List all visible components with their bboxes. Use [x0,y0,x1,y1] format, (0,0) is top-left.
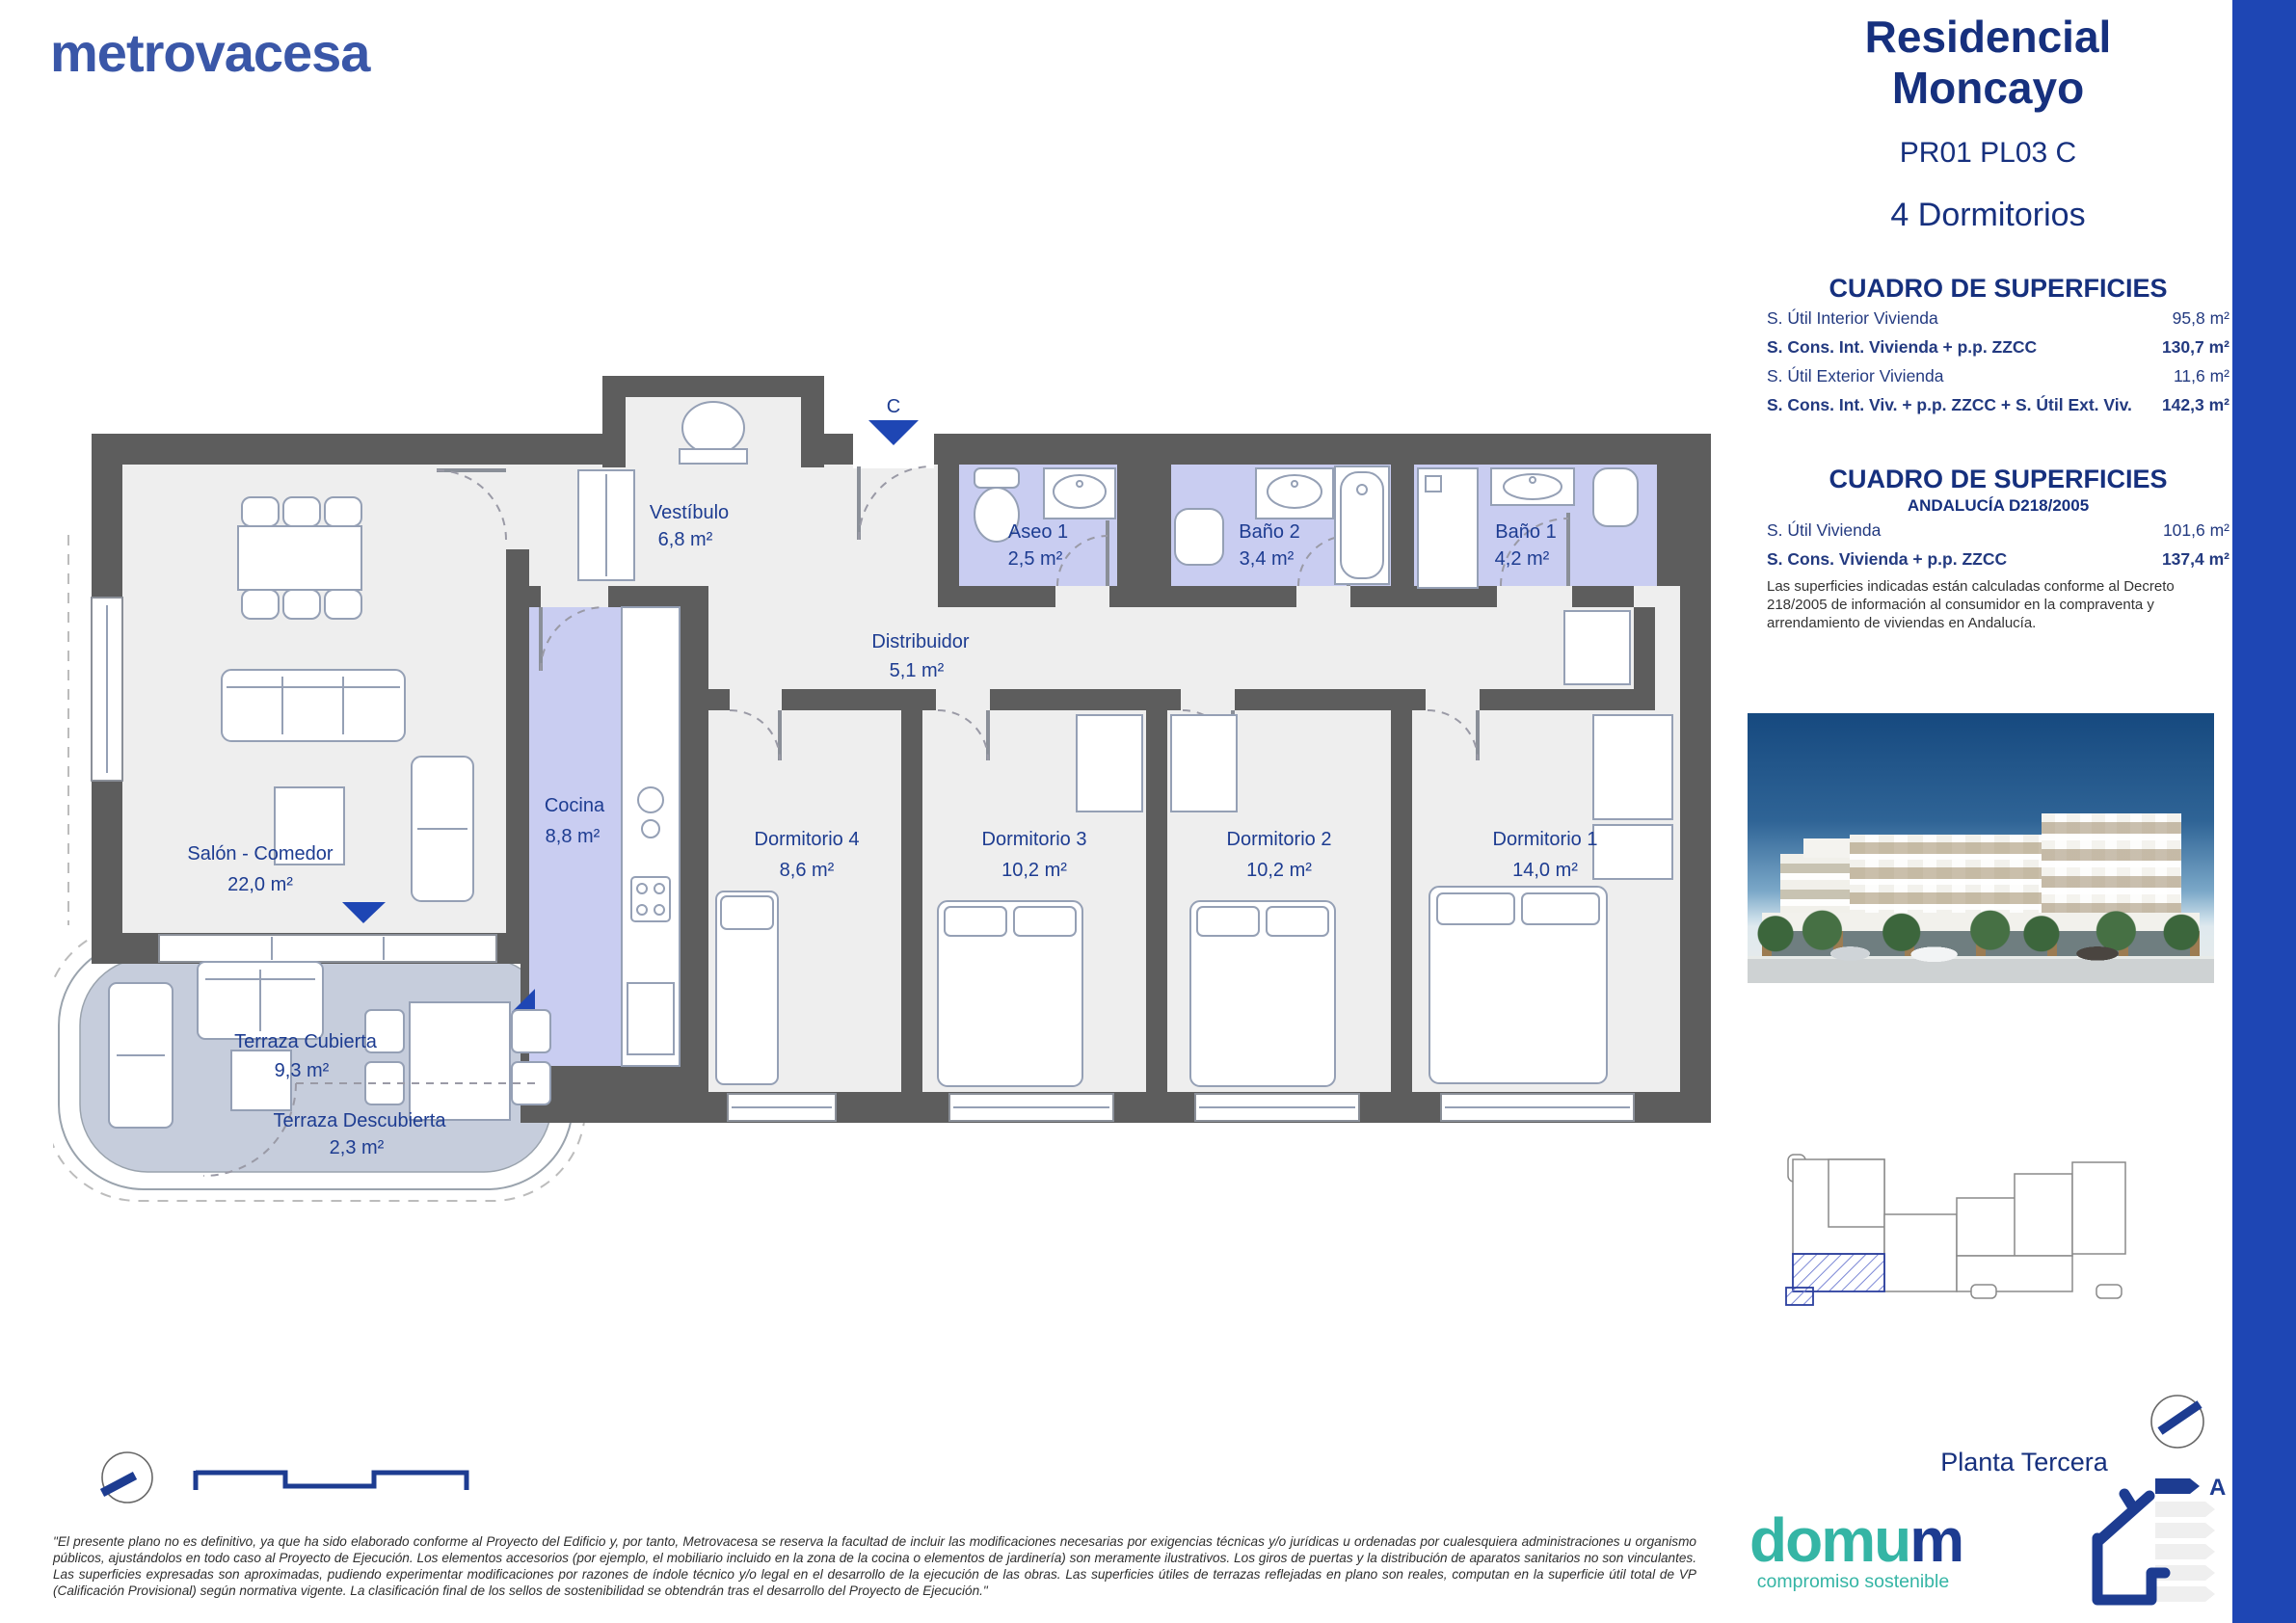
domum-wordmark: domum [1749,1511,1957,1569]
table-row: S. Útil Vivienda 101,6 m² [1767,517,2229,545]
wall [1480,689,1634,710]
wall [1657,465,1680,586]
row-value: 11,6 m² [2174,362,2229,390]
domum-part2: m [1909,1505,1962,1575]
key-plan-block [1884,1214,1957,1291]
sofa [222,670,405,741]
table-row: S. Cons. Int. Viv. + p.p. ZZCC + S. Útil… [1767,391,2229,419]
room-name: Terraza Descubierta [274,1110,447,1131]
toilet [974,468,1019,488]
wardrobe [1593,825,1672,879]
wardrobe [1077,715,1142,811]
wall [782,689,936,710]
wall [1117,465,1171,586]
wall [1146,710,1167,1092]
table-row: S. Cons. Vivienda + p.p. ZZCC 137,4 m² [1767,545,2229,573]
room-name: Baño 2 [1239,521,1299,543]
fridge [627,983,674,1054]
key-plan-block [2096,1285,2122,1298]
burner [637,884,647,893]
project-title-line1: Residencial [1745,12,2231,63]
compass-icon [2148,1392,2207,1451]
andalucia-surfaces-table: CUADRO DE SUPERFICIES ANDALUCÍA D218/200… [1767,465,2229,633]
hall-closet [1564,611,1630,684]
domum-logo: domum compromiso sostenible [1749,1511,1957,1593]
room-name: Dormitorio 3 [982,829,1087,850]
energy-rating-arrow [2155,1478,2200,1494]
energy-bar [2155,1586,2215,1602]
pillow [1267,907,1328,936]
galeria-fixture-base [680,449,747,464]
toilet [1175,509,1223,565]
row-value: 130,7 m² [2162,333,2229,361]
drain [1357,485,1367,494]
wall [1572,586,1634,607]
burner [654,905,664,915]
decree-note: Las superficies indicadas están calculad… [1767,577,2229,633]
wall [708,689,730,710]
row-label: S. Cons. Int. Vivienda + p.p. ZZCC [1767,333,2037,361]
table-row: S. Cons. Int. Vivienda + p.p. ZZCC 130,7… [1767,333,2229,361]
room-name: Baño 1 [1495,521,1556,543]
wardrobe [1171,715,1237,811]
room-area: 6,8 m² [658,529,713,550]
room-area: 8,8 m² [546,826,601,847]
shower-drain [1426,476,1441,492]
floor-plan: C [53,366,1735,1214]
wall [959,586,1055,607]
energy-bar [2155,1502,2215,1517]
house-outline [2097,1494,2165,1600]
pillow [1437,893,1514,924]
key-plan-unit-highlight [1786,1288,1813,1305]
key-plan-block [2015,1174,2072,1256]
chair [325,590,361,619]
wall [901,710,922,1092]
terrace-door [159,935,496,962]
chair [512,1010,550,1052]
room-name: Dormitorio 1 [1493,829,1598,850]
pillow [721,896,773,929]
burner [654,884,664,893]
room-area: 22,0 m² [227,874,293,895]
galeria-fixture [682,402,744,454]
faucet [1292,481,1297,487]
table-row: S. Útil Interior Vivienda 95,8 m² [1767,305,2229,333]
wall [1391,710,1412,1092]
room-name: Terraza Cubierta [234,1031,378,1052]
pillow [1197,907,1259,936]
wall [1109,586,1296,607]
room-name: Distribuidor [871,631,969,652]
wall [1634,607,1655,710]
domum-part1: domu [1749,1505,1909,1575]
chair [242,590,279,619]
room-area: 5,1 m² [890,660,945,681]
header: Residencial Moncayo PR01 PL03 C 4 Dormit… [1745,12,2231,234]
room-area: 10,2 m² [1246,860,1312,881]
render-cars [1748,939,2214,966]
floor-label: Planta Tercera [1889,1448,2159,1477]
pillow [945,907,1006,936]
key-plan-block [1971,1285,1996,1298]
building-render [1748,713,2214,983]
burner [637,905,647,915]
faucet [1530,477,1535,483]
wall [1350,586,1497,607]
row-label: S. Útil Exterior Vivienda [1767,362,1944,390]
wall [608,586,708,607]
pillow [1014,907,1076,936]
wall [1391,465,1414,586]
energy-rating-letter: A [2209,1475,2226,1501]
energy-bar [2155,1544,2215,1559]
right-accent-bar [2232,0,2296,1623]
row-value: 95,8 m² [2173,305,2229,333]
room-area: 3,4 m² [1240,548,1295,570]
plan-sheet: metrovacesa Residencial Moncayo PR01 PL0… [0,0,2296,1623]
kitchen-sink [638,787,663,812]
compass-icon [98,1449,156,1506]
wall [938,465,959,607]
key-plan-block [1829,1159,1884,1227]
room-name: Aseo 1 [1008,521,1068,543]
room-name: Vestíbulo [650,502,729,523]
row-value: 137,4 m² [2162,545,2229,573]
room-area: 10,2 m² [1001,860,1067,881]
chair [242,497,279,526]
wall [529,1066,680,1092]
terrace-dining-table [410,1002,510,1120]
row-label: S. Útil Vivienda [1767,517,1881,545]
metrovacesa-logo: metrovacesa [50,21,369,84]
wardrobe [1593,715,1672,819]
key-plan-unit-highlight [1793,1254,1884,1291]
room-name: Cocina [545,795,605,816]
cooktop [631,877,670,921]
surfaces-table-title: CUADRO DE SUPERFICIES [1767,274,2229,304]
bedroom-count: 4 Dormitorios [1745,197,2231,234]
room-area: 8,6 m² [780,860,835,881]
wall [529,586,541,607]
table-row: S. Útil Exterior Vivienda 11,6 m² [1767,362,2229,390]
row-label: S. Útil Interior Vivienda [1767,305,1938,333]
row-value: 101,6 m² [2163,517,2229,545]
key-plan [1778,1145,2193,1338]
chair [283,590,320,619]
room-area: 4,2 m² [1495,548,1550,570]
room-area: 2,5 m² [1008,548,1063,570]
room-name: Dormitorio 4 [755,829,860,850]
room-area: 9,3 m² [275,1060,330,1081]
andalucia-table-subtitle: ANDALUCÍA D218/2005 [1767,496,2229,516]
kitchen-sink [642,820,659,838]
surfaces-table: CUADRO DE SUPERFICIES S. Útil Interior V… [1767,274,2229,419]
row-value: 142,3 m² [2162,391,2229,419]
pillow [1522,893,1599,924]
chair [325,497,361,526]
legal-disclaimer: "El presente plano no es definitivo, ya … [53,1534,1696,1599]
room-area: 2,3 m² [330,1137,385,1158]
wall [990,689,1181,710]
room-name: Dormitorio 2 [1227,829,1332,850]
unit-reference: PR01 PL03 C [1745,137,2231,170]
project-title-line2: Moncayo [1745,63,2231,114]
energy-rating-icon: A [2063,1475,2234,1614]
wall [680,607,708,1092]
domum-tagline: compromiso sostenible [1749,1571,1957,1593]
scale-bar [193,1469,472,1494]
room-name: Salón - Comedor [187,843,334,865]
faucet [1077,481,1082,487]
energy-bar [2155,1523,2215,1538]
toilet [1593,468,1638,526]
room-area: 14,0 m² [1512,860,1578,881]
wall [1235,689,1426,710]
key-plan-block [2072,1162,2125,1254]
wall [506,549,529,964]
row-label: S. Cons. Int. Viv. + p.p. ZZCC + S. Útil… [1767,391,2132,419]
andalucia-table-title: CUADRO DE SUPERFICIES [1767,465,2229,494]
chair [283,497,320,526]
dining-table [238,526,361,590]
entrance-letter: C [887,396,900,417]
row-label: S. Cons. Vivienda + p.p. ZZCC [1767,545,2007,573]
